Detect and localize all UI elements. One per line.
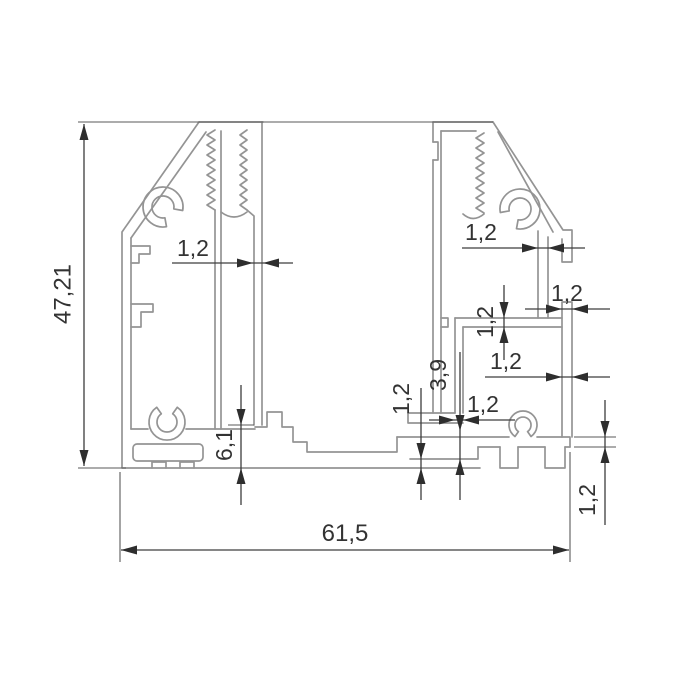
dimension-overall-height: 47,21 [49,122,493,468]
dim-label-right-shelf: 1,2 [472,306,498,338]
dimension-center-web: 1,2 [429,391,515,425]
dim-label-overall-height: 47,21 [49,264,76,324]
dim-label-center-gap: 3,9 [425,359,451,391]
dimension-foot-height: 6,1 [211,385,254,505]
technical-drawing-canvas: 47,21 61,5 1,2 1,2 1,2 1,2 1,2 [0,0,700,700]
dimension-right-lower-wall: 1,2 [485,348,610,382]
dimension-center-floor: 1,2 [388,383,425,500]
dim-label-foot-height: 6,1 [211,429,237,461]
dim-label-center-floor: 1,2 [388,383,414,415]
dim-label-right-lower-wall: 1,2 [490,348,522,374]
dim-label-right-wall: 1,2 [465,219,497,245]
screw-boss-top-right [500,189,540,229]
dim-label-left-wall: 1,2 [177,235,209,261]
dim-label-center-web: 1,2 [467,391,499,417]
screw-boss-bottom-left [149,407,185,440]
dim-label-base-flange: 1,2 [574,484,600,516]
drawing-page: 47,21 61,5 1,2 1,2 1,2 1,2 1,2 [0,0,700,700]
screw-boss-bottom-right [509,411,537,436]
serrated-channel-left [207,130,215,210]
dimension-base-flange: 1,2 [574,400,616,525]
serrated-channel-right [476,133,484,213]
dim-label-overall-width: 61,5 [322,520,369,547]
dim-label-right-tab: 1,2 [551,280,583,306]
dimension-left-wall: 1,2 [172,235,293,268]
dimension-center-gap: 3,9 [425,352,464,500]
dimension-right-wall: 1,2 [462,219,585,253]
